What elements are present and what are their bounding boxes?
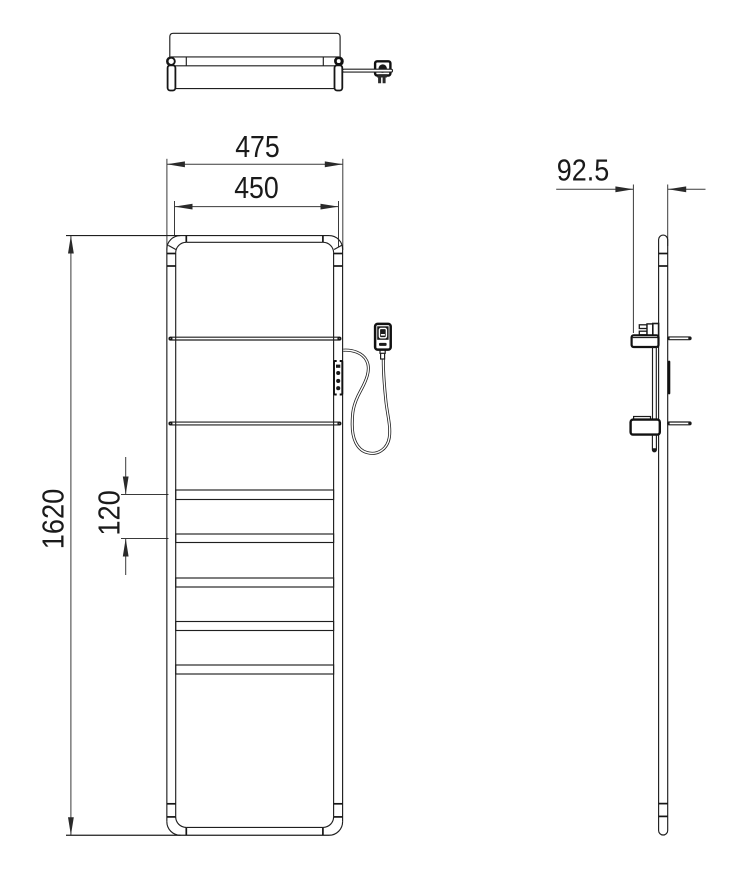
svg-text:92.5: 92.5 <box>557 153 610 188</box>
svg-text:120: 120 <box>91 490 126 536</box>
svg-text:1620: 1620 <box>35 489 70 550</box>
svg-text:475: 475 <box>235 129 280 164</box>
svg-text:450: 450 <box>234 170 279 205</box>
